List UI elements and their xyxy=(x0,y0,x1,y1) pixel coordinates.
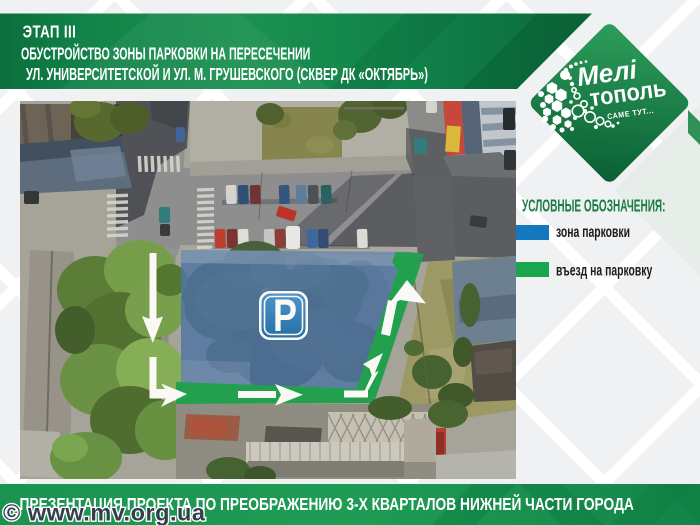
svg-text:ЭТАП III: ЭТАП III xyxy=(23,23,77,42)
svg-text:ОБУСТРОЙСТВО ЗОНЫ ПАРКОВКИ НА: ОБУСТРОЙСТВО ЗОНЫ ПАРКОВКИ НА ПЕРЕСЕЧЕНИ… xyxy=(21,42,310,64)
svg-text:УСЛОВНЫЕ ОБОЗНАЧЕНИЯ:: УСЛОВНЫЕ ОБОЗНАЧЕНИЯ: xyxy=(522,197,665,217)
svg-text:въезд на парковку: въезд на парковку xyxy=(556,261,653,279)
svg-text:зона парковки: зона парковки xyxy=(556,223,630,241)
svg-text:УЛ. УНИВЕРСИТЕТСКОЙ И УЛ. М. Г: УЛ. УНИВЕРСИТЕТСКОЙ И УЛ. М. ГРУШЕВСКОГО… xyxy=(26,63,428,85)
svg-text:© www.mv.org.ua: © www.mv.org.ua xyxy=(3,500,206,525)
